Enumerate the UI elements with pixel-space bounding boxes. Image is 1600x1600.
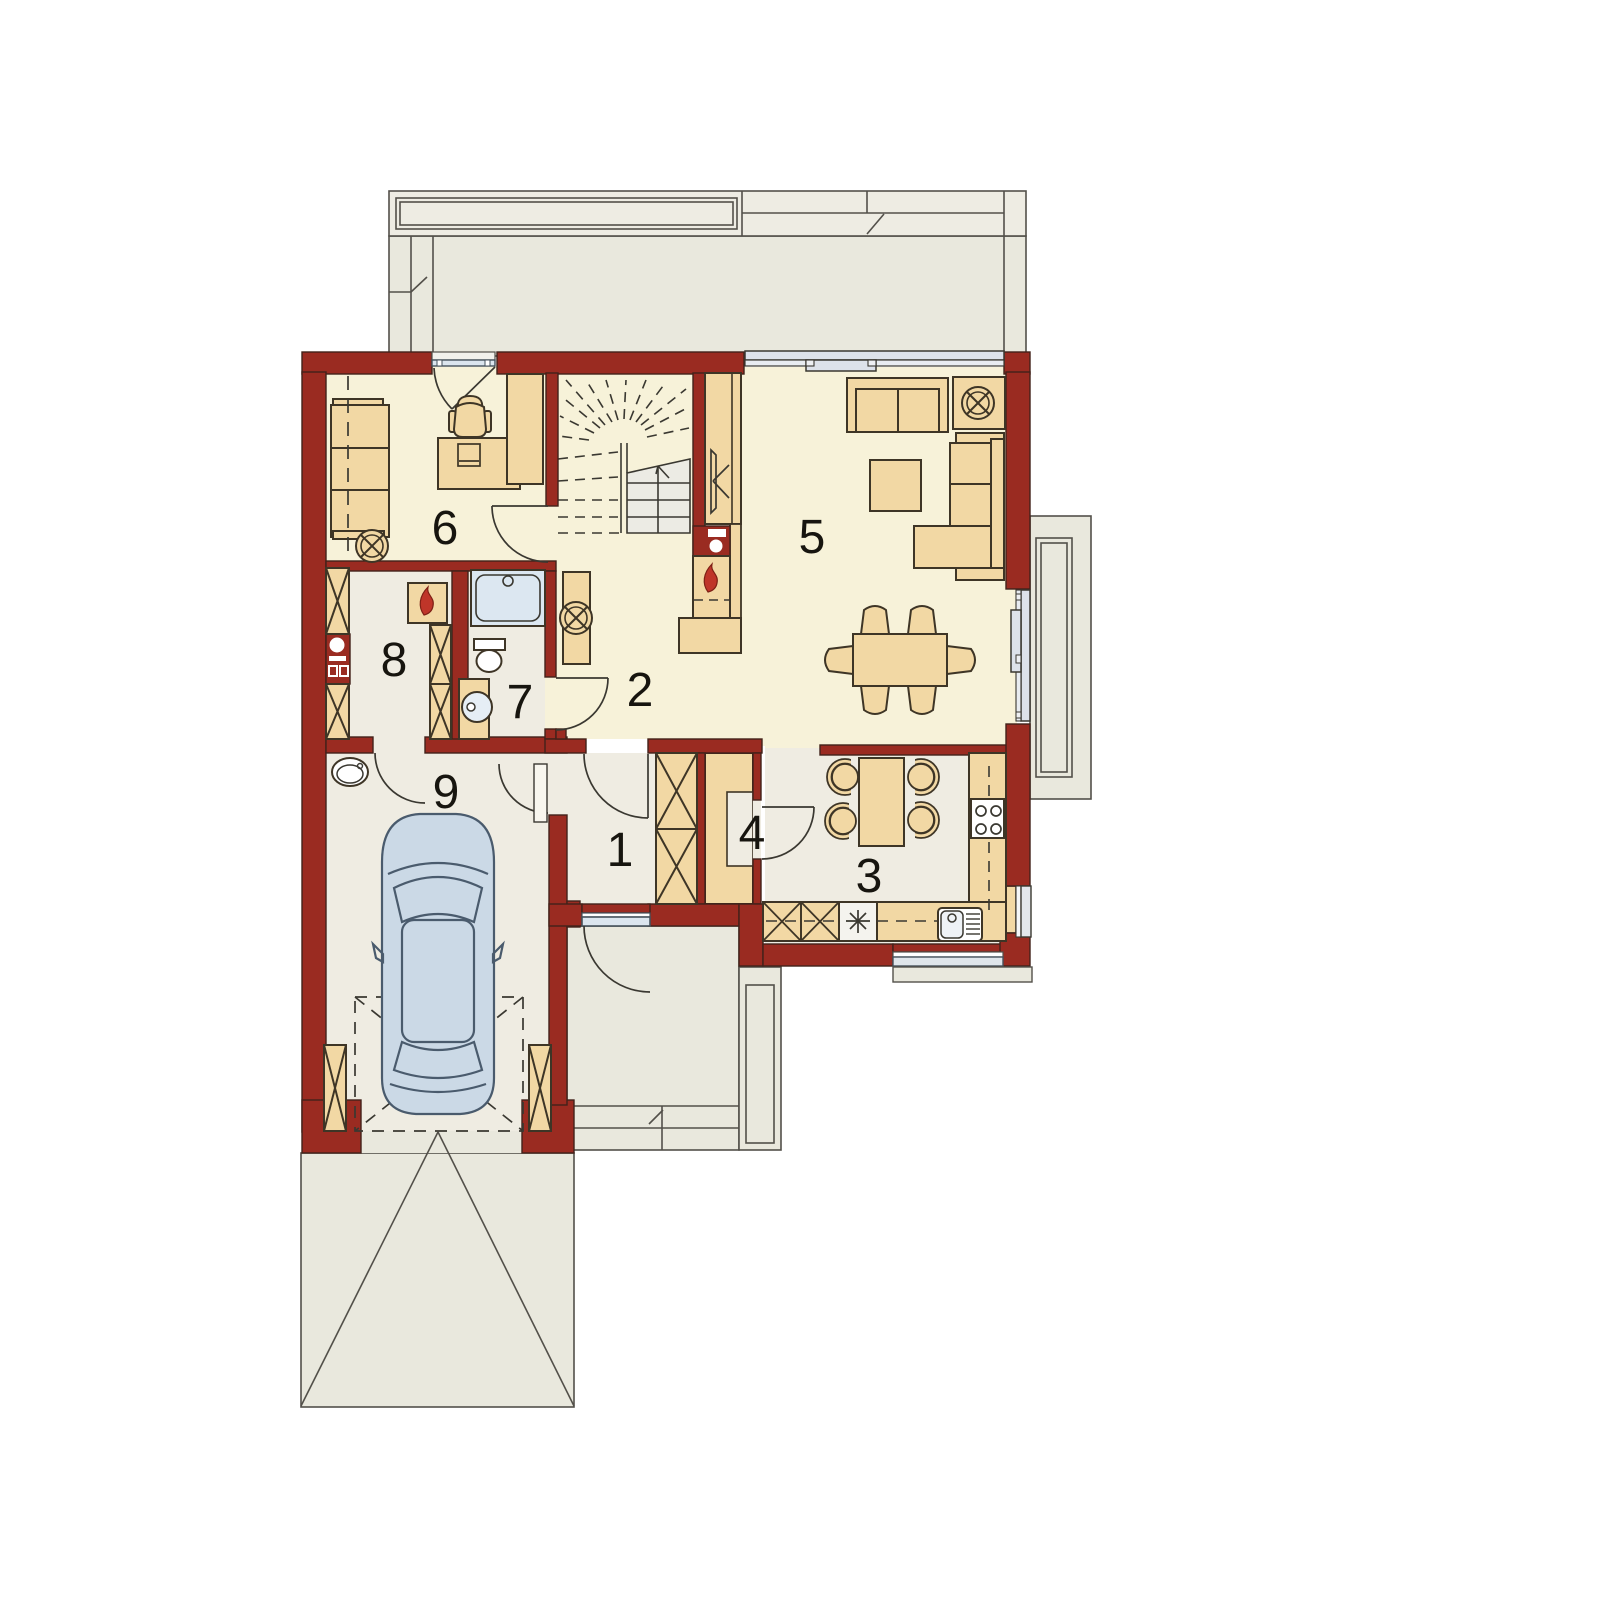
svg-text:4: 4 [739,807,766,860]
svg-text:7: 7 [507,676,534,729]
svg-text:2: 2 [627,664,654,717]
svg-text:8: 8 [381,634,408,687]
svg-text:3: 3 [856,850,883,903]
svg-text:9: 9 [433,766,460,819]
svg-text:1: 1 [607,824,634,877]
svg-text:6: 6 [432,502,459,555]
svg-text:5: 5 [799,511,826,564]
